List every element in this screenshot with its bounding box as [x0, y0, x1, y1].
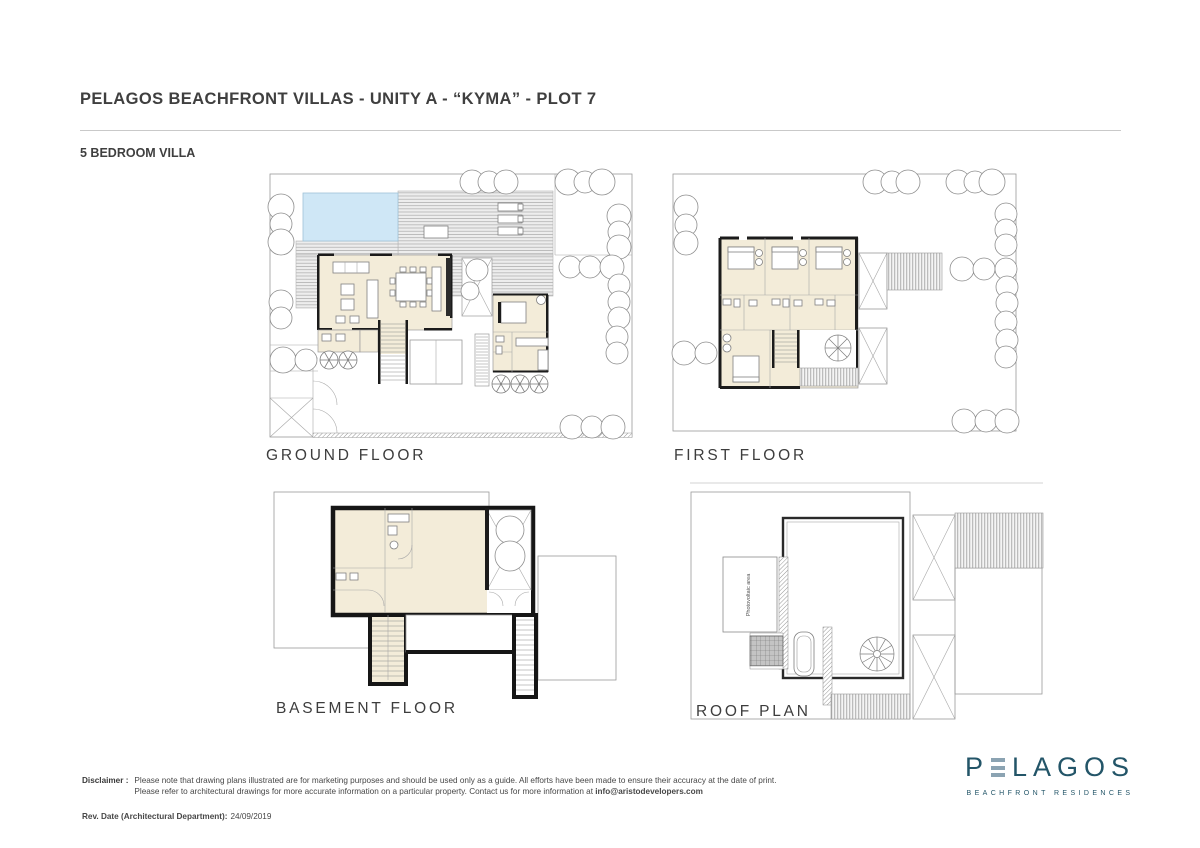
bedroom-level	[719, 236, 859, 389]
living-area	[317, 254, 453, 331]
revision-date: Rev. Date (Architectural Department):24/…	[82, 812, 271, 821]
basement-floor-plan	[270, 485, 650, 700]
covered-parking	[410, 334, 489, 386]
first-floor-plan	[668, 168, 1028, 440]
plot-boundary-right	[955, 568, 1042, 694]
guest-bedroom-wing	[493, 294, 549, 373]
roof-plan: Photovoltaic area	[685, 478, 1085, 726]
photovoltaic-area: Photovoltaic area	[723, 557, 777, 632]
basement-stairs	[370, 615, 406, 684]
header-divider	[80, 130, 1121, 131]
disclaimer-label: Disclaimer :	[82, 776, 128, 797]
photovoltaic-area-label: Photovoltaic area	[746, 573, 752, 616]
logo-e-bars-icon	[991, 758, 1005, 777]
page-subtitle: 5 BEDROOM VILLA	[80, 146, 195, 160]
pelagos-logo: PLAGOS BEACHFRONT RESIDENCES	[952, 752, 1148, 797]
basement-lightwell	[485, 508, 531, 613]
exterior-stair	[514, 615, 536, 697]
swimming-pool	[303, 193, 398, 241]
first-floor-label: FIRST FLOOR	[674, 447, 807, 465]
disclaimer: Disclaimer : Please note that drawing pl…	[82, 776, 932, 797]
plot-boundary-right	[538, 556, 616, 680]
roof-plan-label: ROOF PLAN	[696, 703, 811, 721]
skylight-tub	[794, 632, 814, 676]
page-title: PELAGOS BEACHFRONT VILLAS - UNITY A - “K…	[80, 90, 597, 109]
logo-wordmark: PLAGOS	[952, 752, 1148, 783]
ground-floor-label: GROUND FLOOR	[266, 447, 426, 465]
plan-sheet: PELAGOS BEACHFRONT VILLAS - UNITY A - “K…	[0, 0, 1200, 848]
basement-floor-label: BASEMENT FLOOR	[276, 700, 458, 718]
spiral-staircase	[860, 637, 894, 671]
contact-email: info@aristodevelopers.com	[595, 787, 703, 796]
spiral-staircase	[825, 335, 851, 361]
logo-tagline: BEACHFRONT RESIDENCES	[952, 790, 1148, 797]
lightwell-void	[461, 258, 492, 316]
ground-floor-plan	[262, 168, 634, 440]
disclaimer-text: Please note that drawing plans illustrat…	[134, 776, 776, 797]
solar-panel	[750, 633, 783, 669]
